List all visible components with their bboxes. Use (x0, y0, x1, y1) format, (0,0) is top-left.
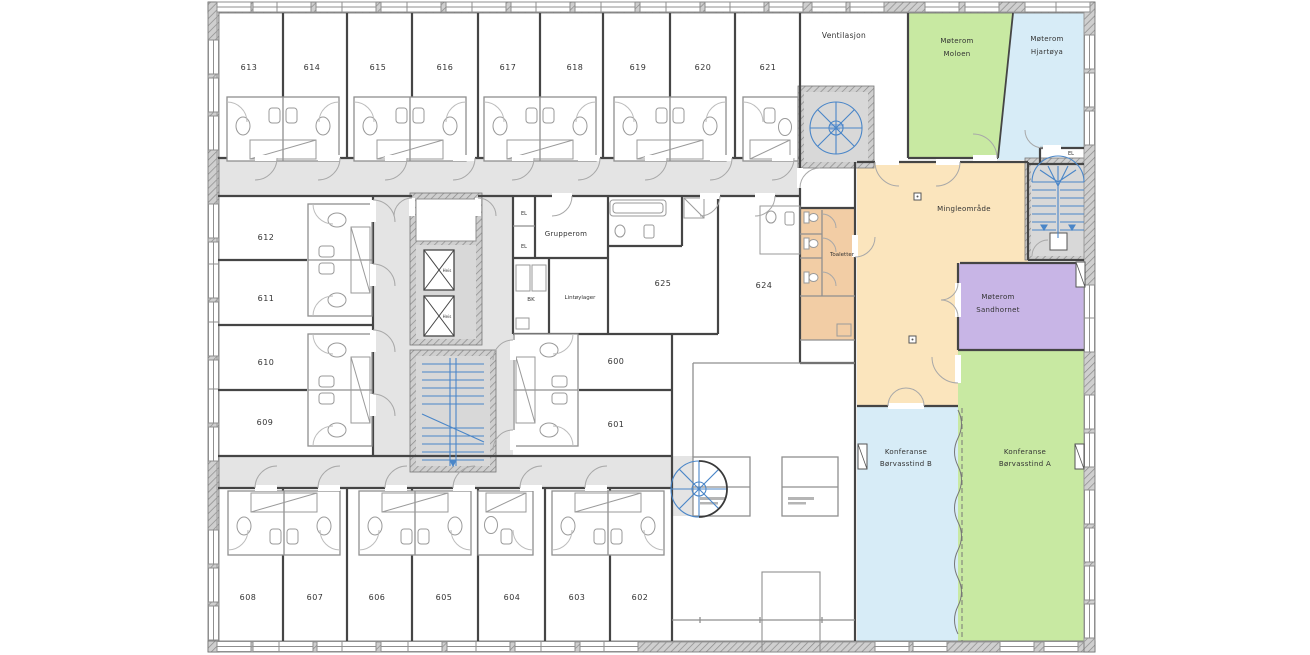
tiny-annotation (700, 497, 726, 500)
room-label-605: 605 (436, 593, 453, 602)
room-label-620: 620 (695, 63, 712, 72)
floor-plan-page: 613 614 615 616 617 618 619 620 621 612 … (0, 0, 1310, 655)
label-mingleomrade: Mingleområde (937, 204, 991, 213)
room-label-614: 614 (304, 63, 321, 72)
room-label-607: 607 (307, 593, 324, 602)
room-label-624: 624 (756, 281, 773, 290)
label-konferanse-a-1: Konferanse (1004, 448, 1046, 456)
tiny-annotation (788, 497, 814, 500)
label-el-1: EL (521, 211, 527, 217)
stair-spiral-atrium (671, 461, 727, 517)
screen-sandhornet (1076, 262, 1085, 287)
room-label-615: 615 (370, 63, 387, 72)
label-sandhornet-1: Møterom (981, 293, 1014, 301)
label-toaletter: Toaletter (829, 252, 855, 258)
label-sandhornet-2: Sandhornet (976, 306, 1020, 314)
room-label-619: 619 (630, 63, 647, 72)
label-el-3: EL (1068, 151, 1074, 157)
floor-plan: 613 614 615 616 617 618 619 620 621 612 … (0, 0, 1310, 655)
label-konferanse-b-1: Konferanse (885, 448, 927, 456)
room-label-612: 612 (258, 233, 275, 242)
room-moterom-moloen (908, 13, 1013, 158)
room-label-604: 604 (504, 593, 521, 602)
room-label-606: 606 (369, 593, 386, 602)
room-label-621: 621 (760, 63, 777, 72)
bathtub (610, 200, 666, 216)
label-hjartoya-1: Møterom (1030, 35, 1063, 43)
label-ventilasjon: Ventilasjon (822, 31, 866, 40)
label-hjartoya-2: Hjartøya (1031, 48, 1063, 56)
label-el-2: EL (521, 244, 527, 250)
room-label-616: 616 (437, 63, 454, 72)
label-moloen-1: Møterom (940, 37, 973, 45)
stair-spiral-ventilasjon (810, 102, 862, 154)
room-label-610: 610 (258, 358, 275, 367)
label-bk: BK (527, 297, 535, 303)
room-label-609: 609 (257, 418, 274, 427)
label-moloen-2: Moloen (943, 50, 970, 58)
room-label-625: 625 (655, 279, 672, 288)
room-label-601: 601 (608, 420, 625, 429)
room-label-602: 602 (632, 593, 649, 602)
room-konferanse-borvasstind-b (857, 406, 958, 641)
room-label-608: 608 (240, 593, 257, 602)
label-konferanse-b-2: Børvasstind B (880, 460, 932, 468)
room-label-603: 603 (569, 593, 586, 602)
label-lintoylager: Lintøylager (565, 295, 597, 301)
label-heis-1: Heis (443, 268, 452, 273)
room-label-613: 613 (241, 63, 258, 72)
screen-konferanse-b (858, 444, 867, 469)
room-konferanse-borvasstind-a (958, 350, 1084, 641)
label-heis-2: Heis (443, 314, 452, 319)
room-label-611: 611 (258, 294, 275, 303)
label-grupperom: Grupperom (545, 230, 587, 238)
room-label-600: 600 (608, 357, 625, 366)
label-konferanse-a-2: Børvasstind A (999, 460, 1051, 468)
room-label-617: 617 (500, 63, 517, 72)
room-label-618: 618 (567, 63, 584, 72)
screen-konferanse-a (1075, 444, 1084, 469)
